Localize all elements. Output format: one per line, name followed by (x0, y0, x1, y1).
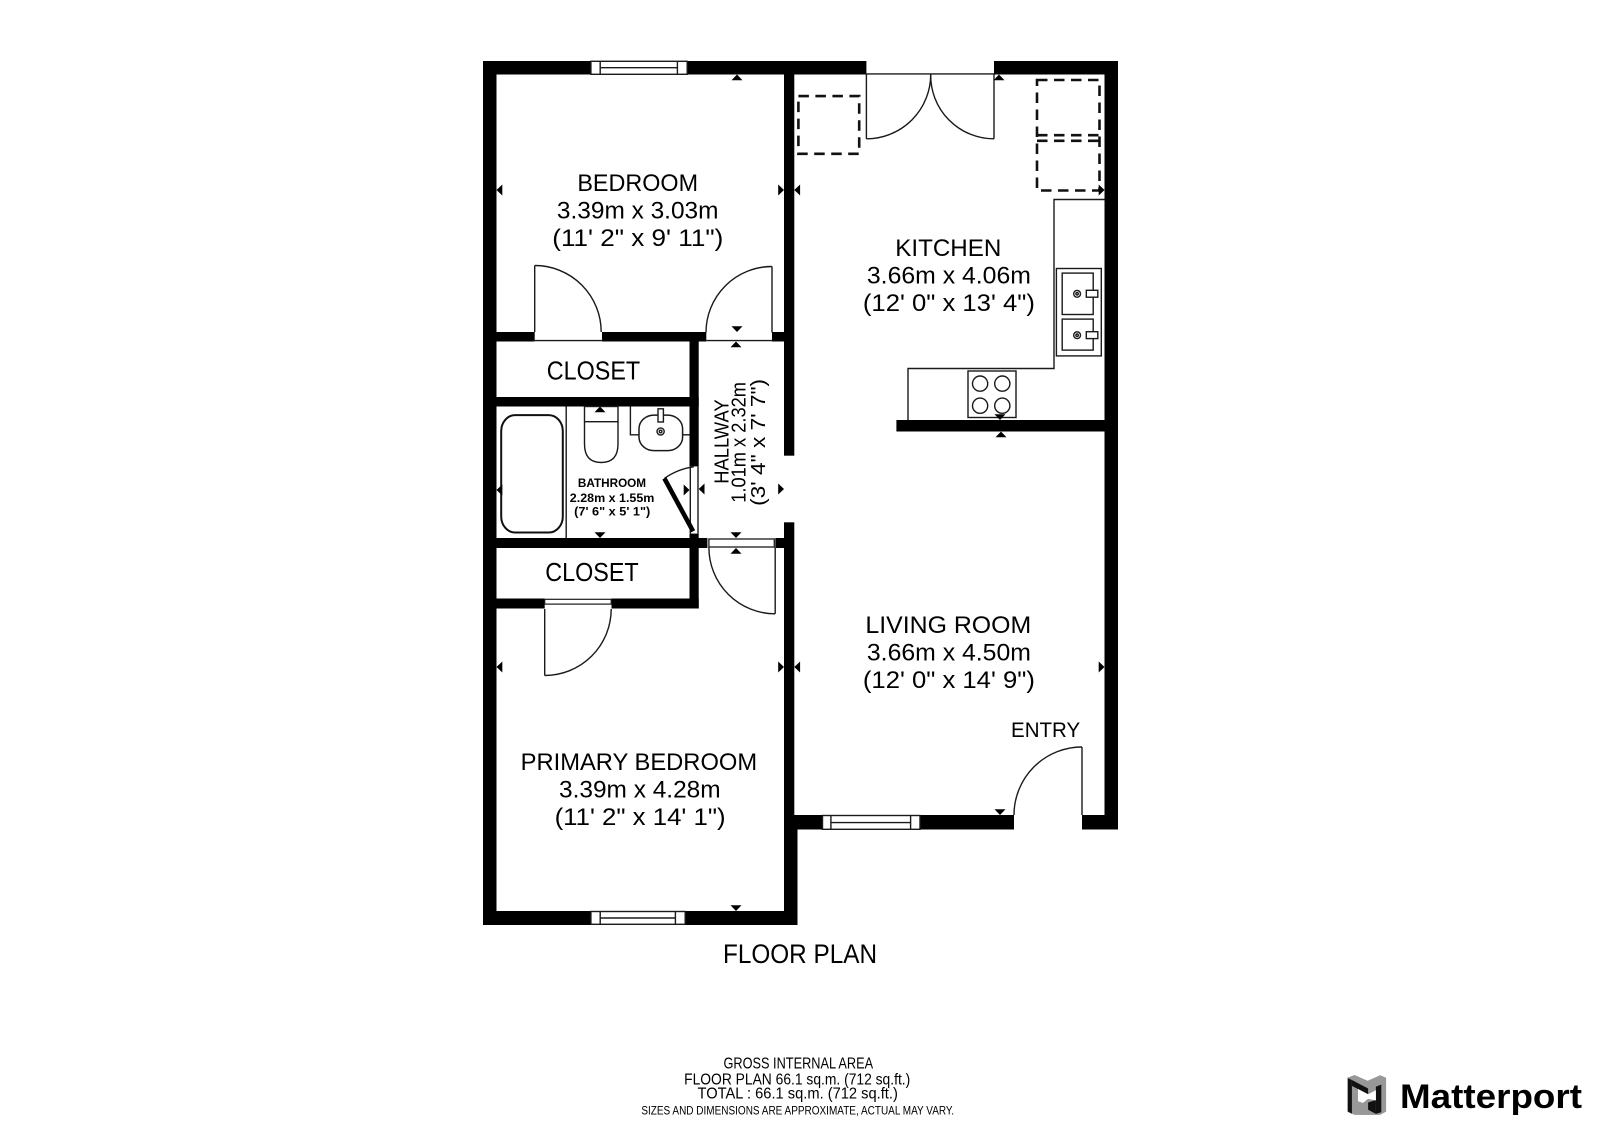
svg-text:Matterport: Matterport (1400, 1078, 1582, 1116)
svg-text:SIZES AND DIMENSIONS ARE APPRO: SIZES AND DIMENSIONS ARE APPROXIMATE, AC… (641, 1106, 954, 1118)
svg-text:(11' 2" x 14' 1"): (11' 2" x 14' 1") (555, 804, 726, 831)
svg-text:3.66m x 4.50m: 3.66m x 4.50m (867, 640, 1031, 667)
svg-text:ENTRY: ENTRY (1011, 719, 1080, 742)
svg-text:(7' 6" x 5' 1"): (7' 6" x 5' 1") (574, 505, 650, 519)
svg-text:3.39m x 4.28m: 3.39m x 4.28m (559, 777, 721, 804)
svg-text:FLOOR PLAN: FLOOR PLAN (723, 939, 877, 969)
svg-text:(12' 0" x 13' 4"): (12' 0" x 13' 4") (863, 290, 1035, 317)
svg-text:(11' 2" x 9' 11"): (11' 2" x 9' 11") (552, 225, 723, 252)
svg-text:BATHROOM: BATHROOM (578, 476, 646, 490)
svg-text:LIVING ROOM: LIVING ROOM (865, 612, 1031, 639)
svg-text:CLOSET: CLOSET (545, 557, 639, 587)
svg-text:GROSS INTERNAL AREA: GROSS INTERNAL AREA (724, 1056, 874, 1073)
svg-text:(3' 4" x 7' 7"): (3' 4" x 7' 7") (748, 379, 770, 506)
svg-text:(12' 0" x 14' 9"): (12' 0" x 14' 9") (863, 667, 1035, 694)
svg-text:3.39m x 3.03m: 3.39m x 3.03m (557, 198, 719, 225)
svg-text:3.66m x 4.06m: 3.66m x 4.06m (867, 263, 1031, 290)
svg-text:BEDROOM: BEDROOM (577, 170, 698, 197)
svg-text:CLOSET: CLOSET (547, 356, 641, 386)
svg-text:PRIMARY BEDROOM: PRIMARY BEDROOM (521, 749, 758, 776)
svg-text:KITCHEN: KITCHEN (895, 235, 1001, 262)
svg-text:2.28m x 1.55m: 2.28m x 1.55m (570, 491, 655, 505)
svg-text:TOTAL : 66.1 sq.m. (712 sq.ft: TOTAL : 66.1 sq.m. (712 sq.ft.) (698, 1085, 898, 1102)
